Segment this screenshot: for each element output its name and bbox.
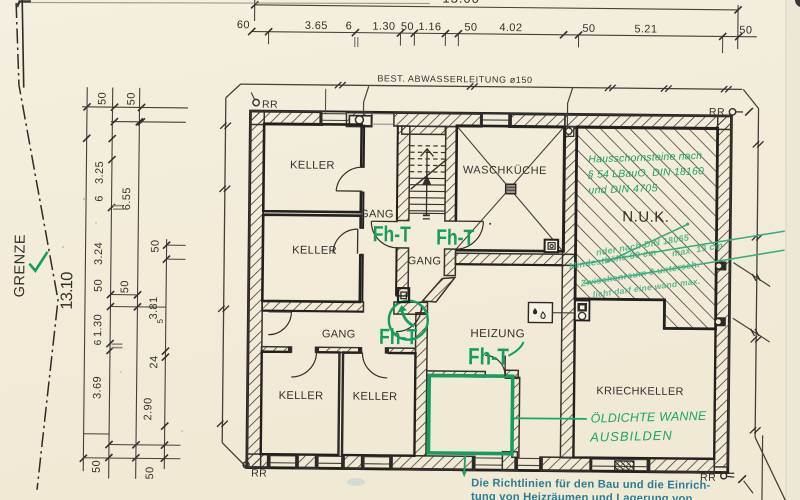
svg-text:Fh-T: Fh-T bbox=[436, 226, 474, 251]
svg-text:HEIZUNG: HEIZUNG bbox=[470, 328, 525, 341]
svg-text:6: 6 bbox=[93, 339, 104, 345]
svg-text:3.25: 3.25 bbox=[94, 161, 106, 184]
svg-text:5: 5 bbox=[156, 318, 165, 323]
svg-text:1.30: 1.30 bbox=[92, 314, 104, 337]
svg-text:und DIN 4705: und DIN 4705 bbox=[588, 182, 658, 196]
svg-text:13.00: 13.00 bbox=[442, 0, 480, 6]
svg-text:BEST. ABWASSERLEITUNG ø150: BEST. ABWASSERLEITUNG ø150 bbox=[377, 73, 532, 85]
svg-text:50: 50 bbox=[401, 21, 414, 33]
svg-text:6: 6 bbox=[346, 20, 353, 32]
svg-text:50: 50 bbox=[144, 466, 156, 479]
svg-text:KELLER: KELLER bbox=[292, 244, 337, 256]
svg-text:3.65: 3.65 bbox=[305, 20, 328, 32]
svg-text:RR: RR bbox=[709, 106, 725, 118]
svg-text:KELLER: KELLER bbox=[279, 390, 324, 402]
svg-text:50: 50 bbox=[739, 24, 752, 36]
svg-text:60: 60 bbox=[237, 19, 250, 31]
svg-text:GANG: GANG bbox=[360, 208, 394, 220]
svg-text:50: 50 bbox=[119, 280, 131, 293]
svg-text:1.30: 1.30 bbox=[372, 21, 395, 33]
svg-text:AUSBILDEN: AUSBILDEN bbox=[589, 428, 673, 445]
svg-text:KRIECHKELLER: KRIECHKELLER bbox=[596, 385, 683, 398]
svg-text:13.10: 13.10 bbox=[58, 272, 76, 310]
svg-text:RR: RR bbox=[262, 99, 278, 111]
svg-text:6.55: 6.55 bbox=[121, 187, 133, 210]
svg-text:50: 50 bbox=[93, 279, 105, 292]
svg-text:ÖLDICHTE WANNE: ÖLDICHTE WANNE bbox=[591, 409, 708, 426]
svg-text:50: 50 bbox=[126, 92, 138, 105]
svg-text:Fh-T: Fh-T bbox=[373, 223, 411, 248]
svg-text:2.90: 2.90 bbox=[142, 397, 154, 420]
svg-text:3.81: 3.81 bbox=[148, 296, 160, 319]
svg-text:1.16: 1.16 bbox=[418, 21, 441, 33]
svg-text:RR: RR bbox=[251, 468, 267, 480]
svg-text:5.21: 5.21 bbox=[634, 23, 657, 35]
svg-text:Die Richtlinien für den Bau un: Die Richtlinien für den Bau und die Einr… bbox=[471, 477, 711, 492]
svg-text:50: 50 bbox=[150, 239, 162, 252]
svg-text:6: 6 bbox=[94, 195, 106, 202]
svg-text:WASCHKÜCHE: WASCHKÜCHE bbox=[463, 164, 547, 177]
svg-text:50: 50 bbox=[91, 460, 103, 473]
svg-text:50: 50 bbox=[464, 22, 477, 34]
svg-text:24: 24 bbox=[148, 355, 160, 368]
svg-text:KELLER: KELLER bbox=[290, 159, 335, 171]
svg-text:3.24: 3.24 bbox=[93, 242, 105, 265]
svg-text:KELLER: KELLER bbox=[353, 391, 398, 403]
svg-text:GANG: GANG bbox=[408, 255, 442, 267]
svg-text:GRENZE: GRENZE bbox=[12, 234, 29, 298]
svg-text:3.69: 3.69 bbox=[91, 376, 103, 399]
svg-text:N.U.K.: N.U.K. bbox=[622, 208, 669, 225]
svg-text:Fh-T: Fh-T bbox=[468, 343, 509, 370]
svg-text:50: 50 bbox=[582, 23, 595, 35]
svg-text:Fh-T: Fh-T bbox=[379, 325, 417, 350]
svg-text:GANG: GANG bbox=[322, 328, 356, 340]
svg-text:50: 50 bbox=[97, 92, 109, 105]
svg-text:4.02: 4.02 bbox=[499, 22, 522, 34]
svg-text:tung von Heizräumen und Lageru: tung von Heizräumen und Lagerung von bbox=[471, 491, 693, 500]
